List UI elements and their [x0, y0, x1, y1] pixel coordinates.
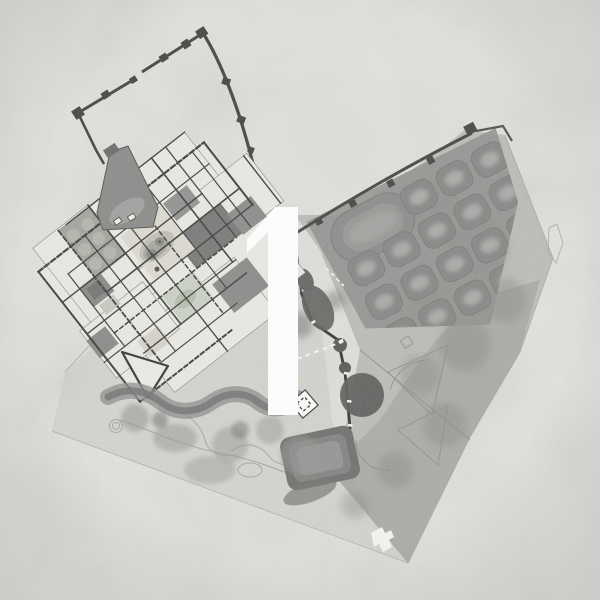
plan-canvas: 1	[0, 0, 600, 600]
vignette	[0, 0, 600, 600]
site-plan-figure: 1	[0, 0, 600, 600]
